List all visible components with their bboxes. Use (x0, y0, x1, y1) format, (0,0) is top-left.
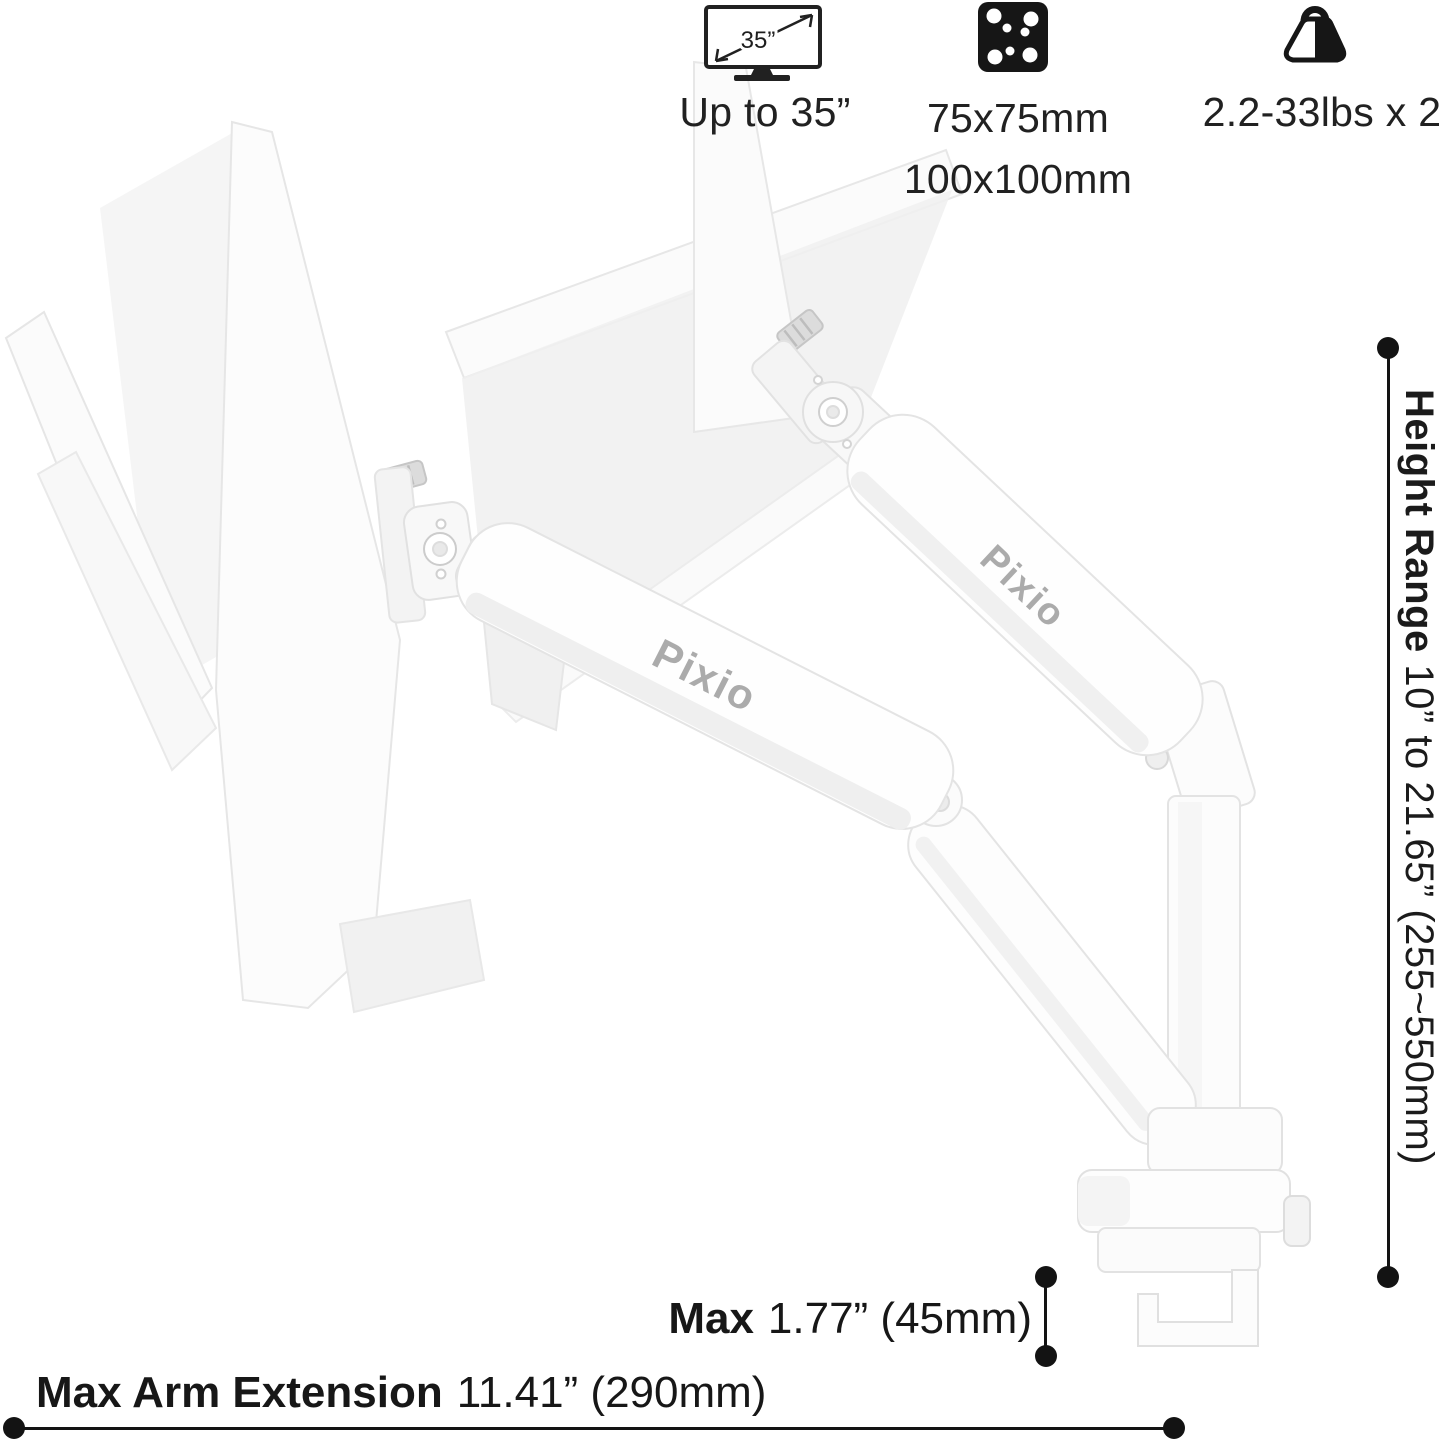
arm-extension-line (14, 1427, 1174, 1430)
clamp-lever (1284, 1196, 1310, 1246)
weight-capacity-icon (1275, 1, 1355, 75)
vesa-size-line2: 100x100mm (890, 149, 1146, 210)
height-range-label-value: 10” to 21.65” (255~550mm) (1397, 664, 1441, 1165)
clamp-thickness-label-bold: Max (668, 1294, 754, 1343)
vesa-size-label: 75x75mm 100x100mm (890, 88, 1146, 210)
height-range-dot-bottom (1377, 1266, 1399, 1288)
height-range-line (1387, 348, 1390, 1277)
left-monitor-panel (216, 122, 400, 1008)
clamp-thickness-dot-bottom (1035, 1345, 1057, 1367)
height-range-label: Height Range 10” to 21.65” (255~550mm) (1396, 389, 1441, 1165)
clamp-thickness-label: Max1.77” (45mm) (480, 1294, 1032, 1344)
height-range-label-bold: Height Range (1397, 389, 1441, 653)
front-forearm (894, 790, 1211, 1159)
arm-extension-dot-right (1163, 1417, 1185, 1439)
clamp-plate-step (1078, 1176, 1130, 1226)
vesa-size-line1: 75x75mm (890, 88, 1146, 149)
weight-capacity-label: 2.2-33lbs x 2 (1196, 88, 1445, 137)
clamp-lower-block (1098, 1228, 1260, 1272)
monitor-arm-illustration: Pixio (0, 0, 1445, 1443)
screen-size-label: Up to 35” (620, 88, 910, 137)
vesa-pattern-icon (977, 1, 1049, 73)
screen-size-icon: 35” (700, 4, 830, 86)
clamp-collar (1148, 1108, 1282, 1174)
clamp-thickness-label-value: 1.77” (45mm) (768, 1294, 1032, 1343)
clamp-c-bracket (1138, 1270, 1258, 1346)
product-infographic: Pixio (0, 0, 1445, 1443)
arm-extension-label: Max Arm Extension11.41” (290mm) (36, 1368, 766, 1418)
arm-extension-label-value: 11.41” (290mm) (457, 1368, 767, 1417)
screen-size-icon-text: 35” (741, 27, 776, 54)
arm-extension-label-bold: Max Arm Extension (36, 1368, 443, 1417)
clamp-thickness-dot-top (1035, 1266, 1057, 1288)
height-range-dot-top (1377, 337, 1399, 359)
arm-extension-dot-left (3, 1417, 25, 1439)
